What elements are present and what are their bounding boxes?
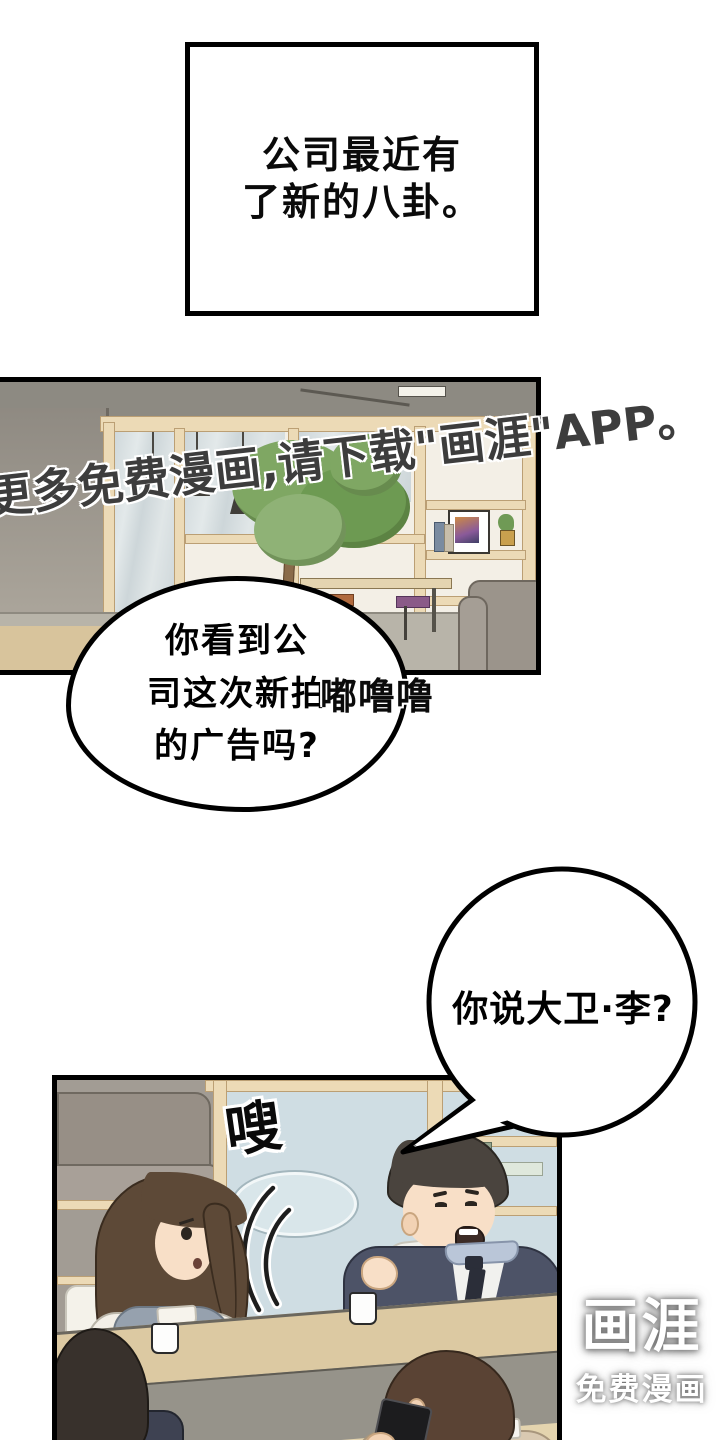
plant-foliage-3	[254, 494, 346, 566]
shelf-plant-pot	[500, 530, 515, 546]
narration-line-1: 公司最近有	[262, 132, 462, 180]
meeting-table	[300, 578, 452, 589]
app-logo-subtitle: 免费漫画	[563, 1364, 720, 1409]
woman-eye	[181, 1227, 192, 1240]
frame-beam	[100, 416, 536, 432]
picture-art	[455, 517, 479, 543]
man-ear	[401, 1212, 419, 1236]
sofa-arm	[458, 596, 488, 674]
man-teeth	[459, 1229, 478, 1235]
sfx-rumble-text: 嘟噜噜	[320, 666, 434, 720]
shelf-books-2	[444, 524, 454, 552]
cup-man	[349, 1292, 377, 1325]
narration-box: 公司最近有 了新的八卦。	[185, 42, 539, 316]
plant-foliage-4	[330, 434, 402, 496]
sfx-whoosh-text: 嗖	[220, 1080, 287, 1168]
man-fist	[361, 1256, 398, 1290]
cup-woman	[151, 1323, 179, 1354]
lamp-cord-2	[196, 432, 198, 476]
man-eye-left	[435, 1202, 447, 1207]
chair-seat-2	[396, 596, 430, 608]
bubble1-line-1: 你看到公	[165, 615, 309, 668]
narration-line-2: 了新的八卦。	[242, 179, 482, 227]
man-eye-right	[465, 1201, 477, 1206]
ceiling-light	[398, 386, 446, 397]
bubble2-text: 你说大卫·李?	[428, 980, 698, 1032]
app-logo-title: 画涯	[563, 1292, 720, 1362]
comic-page: 公司最近有 了新的八卦。	[0, 0, 720, 1440]
table-leg-2	[432, 588, 436, 632]
chair-leg-2	[404, 606, 407, 640]
lamp-cord-1	[152, 432, 154, 458]
bubble1-line-2: 司这次新拍	[147, 668, 327, 721]
woman-mouth	[193, 1258, 202, 1269]
bubble1-line-3: 的广告吗?	[154, 720, 320, 773]
app-logo-watermark: 画涯 免费漫画	[563, 1292, 720, 1409]
shelf-board-1	[426, 500, 526, 510]
